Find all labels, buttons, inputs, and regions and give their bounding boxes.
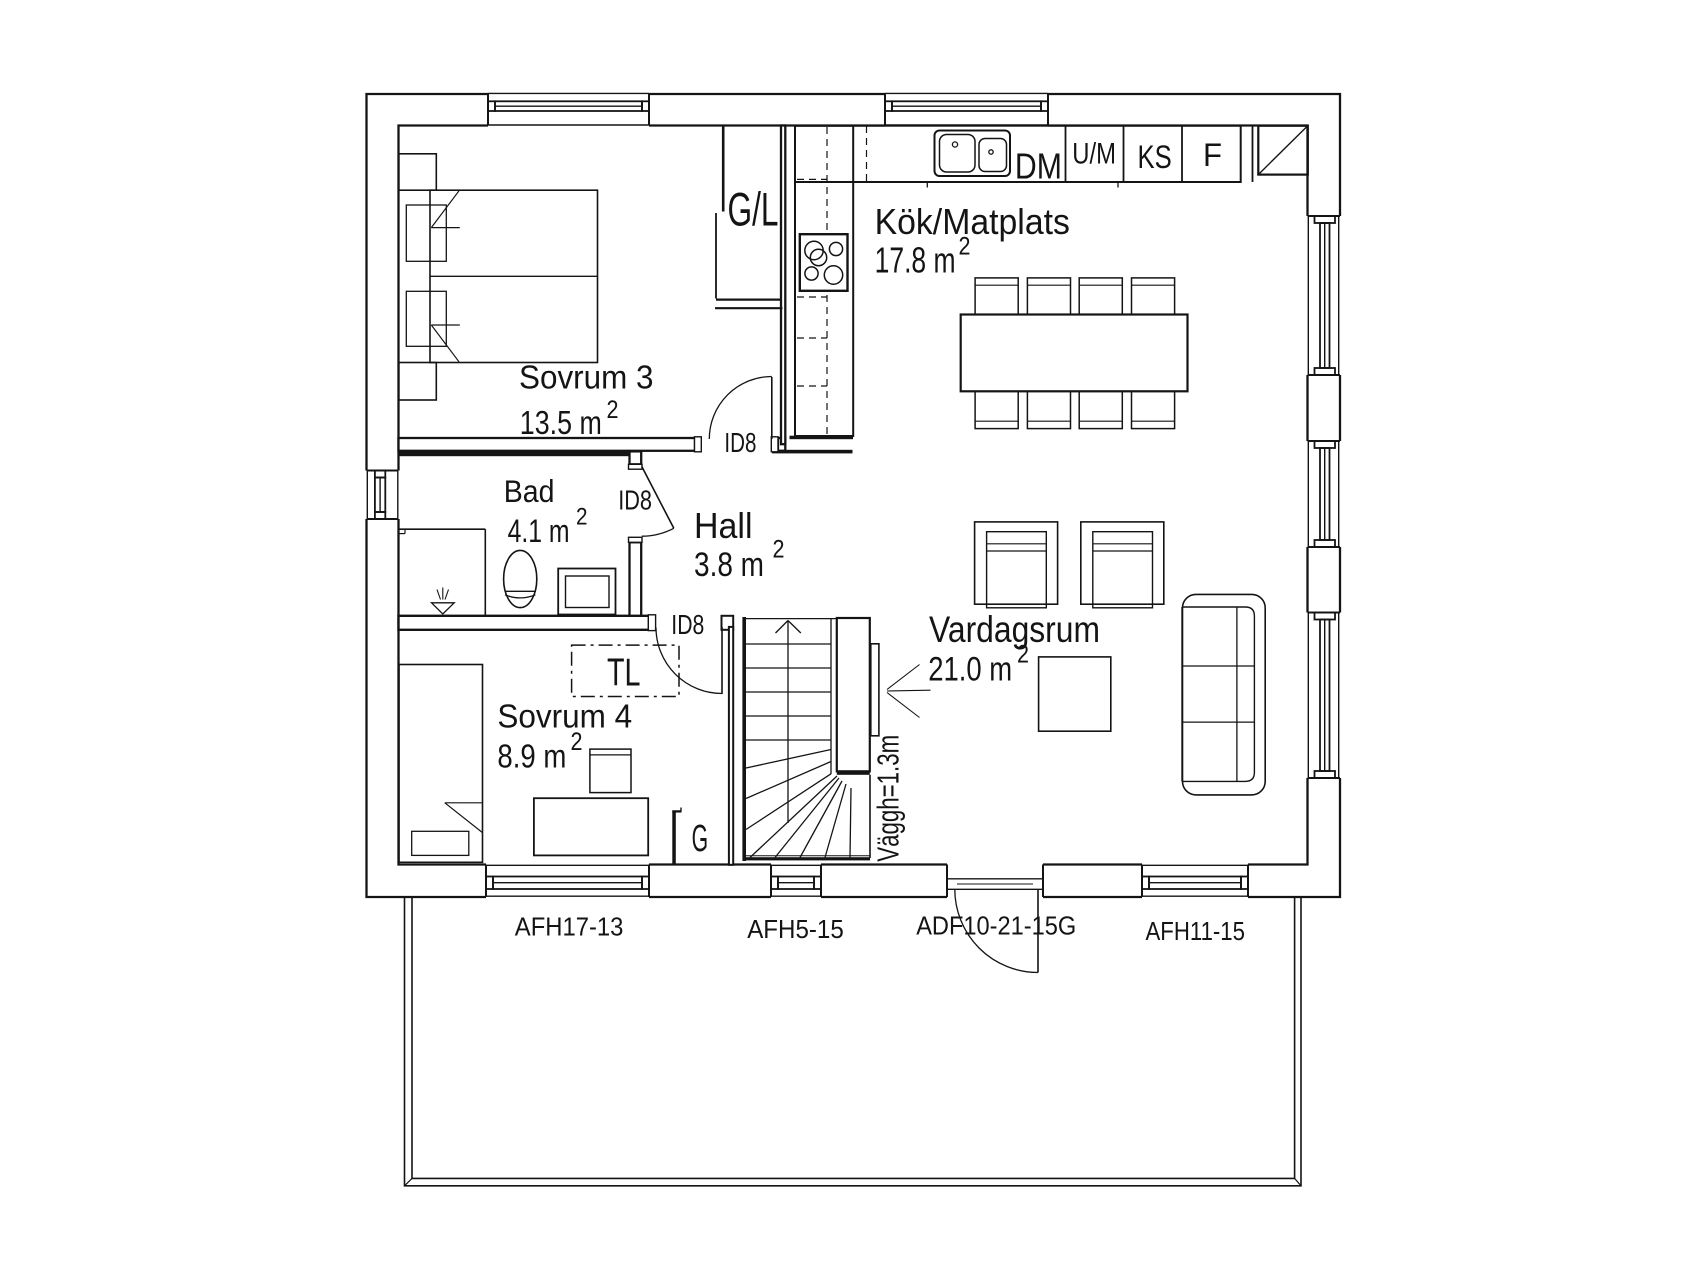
svg-text:17.8 m: 17.8 m	[875, 241, 956, 281]
svg-text:AFH11-15: AFH11-15	[1146, 916, 1246, 946]
svg-text:ID8: ID8	[671, 609, 704, 640]
svg-text:ADF10-21-15G: ADF10-21-15G	[916, 911, 1076, 941]
svg-text:G: G	[692, 818, 709, 860]
svg-text:Kök/Matplats: Kök/Matplats	[875, 202, 1070, 242]
svg-text:U/M: U/M	[1072, 138, 1116, 171]
svg-text:DM: DM	[1015, 146, 1062, 187]
svg-text:8.9 m: 8.9 m	[497, 739, 566, 776]
svg-text:Väggh=1.3m: Väggh=1.3m	[871, 735, 906, 862]
svg-text:ID8: ID8	[618, 484, 652, 515]
svg-text:Sovrum 4: Sovrum 4	[497, 698, 632, 735]
svg-text:KS: KS	[1138, 139, 1172, 175]
svg-text:4.1 m: 4.1 m	[508, 513, 570, 549]
svg-text:AFH17-13: AFH17-13	[515, 912, 624, 942]
svg-text:ID8: ID8	[724, 427, 756, 458]
svg-text:Hall: Hall	[694, 505, 753, 546]
svg-text:13.5 m: 13.5 m	[520, 405, 602, 442]
svg-text:F: F	[1203, 137, 1222, 173]
svg-text:2: 2	[576, 504, 588, 531]
svg-text:G/L: G/L	[728, 183, 779, 236]
svg-text:Sovrum 3: Sovrum 3	[519, 360, 654, 397]
svg-text:Vardagsrum: Vardagsrum	[929, 609, 1100, 650]
svg-text:AFH5-15: AFH5-15	[747, 914, 844, 944]
svg-text:2: 2	[1017, 641, 1029, 669]
svg-text:2: 2	[773, 536, 785, 564]
svg-text:Bad: Bad	[504, 473, 555, 509]
svg-text:TL: TL	[607, 652, 641, 695]
svg-text:2: 2	[571, 728, 583, 756]
svg-text:21.0 m: 21.0 m	[928, 651, 1012, 689]
svg-text:3.8 m: 3.8 m	[694, 546, 764, 584]
svg-text:2: 2	[607, 396, 619, 424]
svg-text:2: 2	[959, 233, 971, 261]
